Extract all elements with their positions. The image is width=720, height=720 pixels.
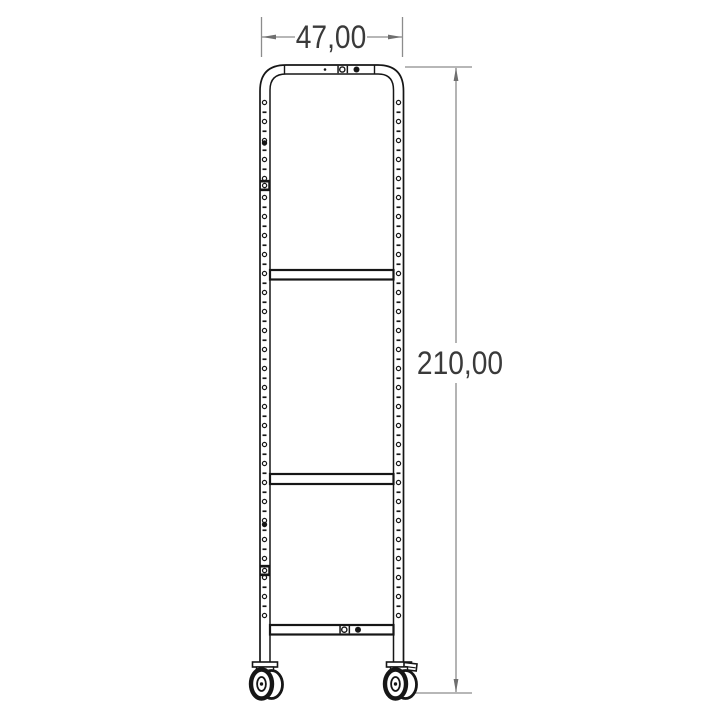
bolt-head-icon (355, 627, 361, 633)
right-caster (385, 662, 417, 699)
drawing-canvas: 47,00 210,00 (0, 0, 720, 720)
crossbar-middle (270, 474, 394, 484)
top-tube-fastener-symbols (324, 66, 360, 73)
latch-symbol-icon (260, 566, 269, 576)
caster-plate (253, 662, 278, 667)
bolt-head-icon (354, 67, 360, 73)
crossbar-bottom (270, 625, 394, 635)
latch-symbol-icon (260, 181, 269, 191)
bracket-mark-icon (337, 66, 339, 73)
bracket-mark-icon (339, 626, 341, 633)
bolt-hole-icon (340, 67, 345, 72)
height-dimension-label: 210,00 (417, 347, 503, 379)
rivet-dot-icon (324, 68, 327, 71)
width-dimension-label: 47,00 (296, 21, 366, 53)
bracket-mark-icon (349, 626, 351, 633)
top-tube-joint-lines (285, 65, 375, 74)
right-rail-holes (394, 98, 404, 623)
caster-hub-icon (394, 682, 397, 685)
frame-outer-contour (260, 65, 404, 663)
frame-linework (0, 0, 720, 720)
left-caster (251, 662, 283, 699)
caster-hub-icon (260, 682, 263, 685)
pin-dot-icon (262, 522, 267, 527)
left-rail-holes (260, 98, 270, 623)
bracket-mark-icon (347, 66, 349, 73)
pin-dot-icon (262, 140, 267, 145)
frame-inner-contour (270, 74, 394, 663)
crossbar-top (270, 270, 394, 280)
